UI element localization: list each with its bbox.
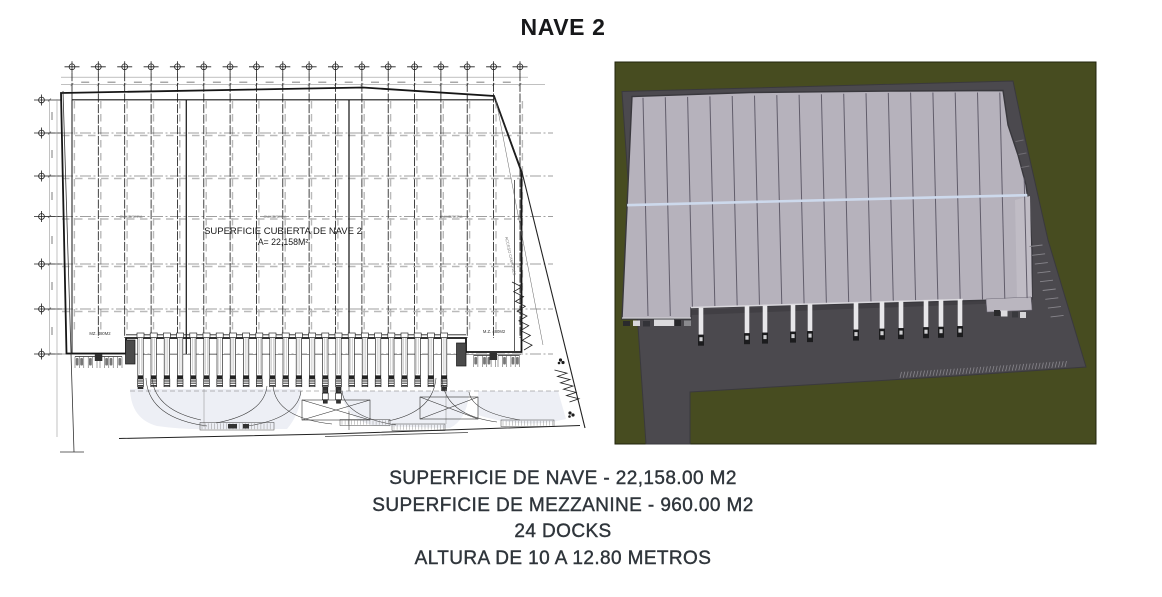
svg-text:SUPERFICIE CUBIERTA DE NAVE 2: SUPERFICIE CUBIERTA DE NAVE 2: [204, 226, 362, 237]
svg-text:ACCESO CAMIONES: ACCESO CAMIONES: [504, 236, 517, 276]
svg-text:CUMBRERA: CUMBRERA: [440, 214, 463, 219]
svg-text:CUMBRERA: CUMBRERA: [120, 214, 143, 219]
svg-text:M.Z. 480M2: M.Z. 480M2: [483, 329, 506, 334]
svg-text:MZ. 480M2: MZ. 480M2: [89, 331, 111, 336]
svg-text:CUMBRERA: CUMBRERA: [264, 214, 287, 219]
svg-text:A= 22,158M²: A= 22,158M²: [258, 237, 309, 247]
